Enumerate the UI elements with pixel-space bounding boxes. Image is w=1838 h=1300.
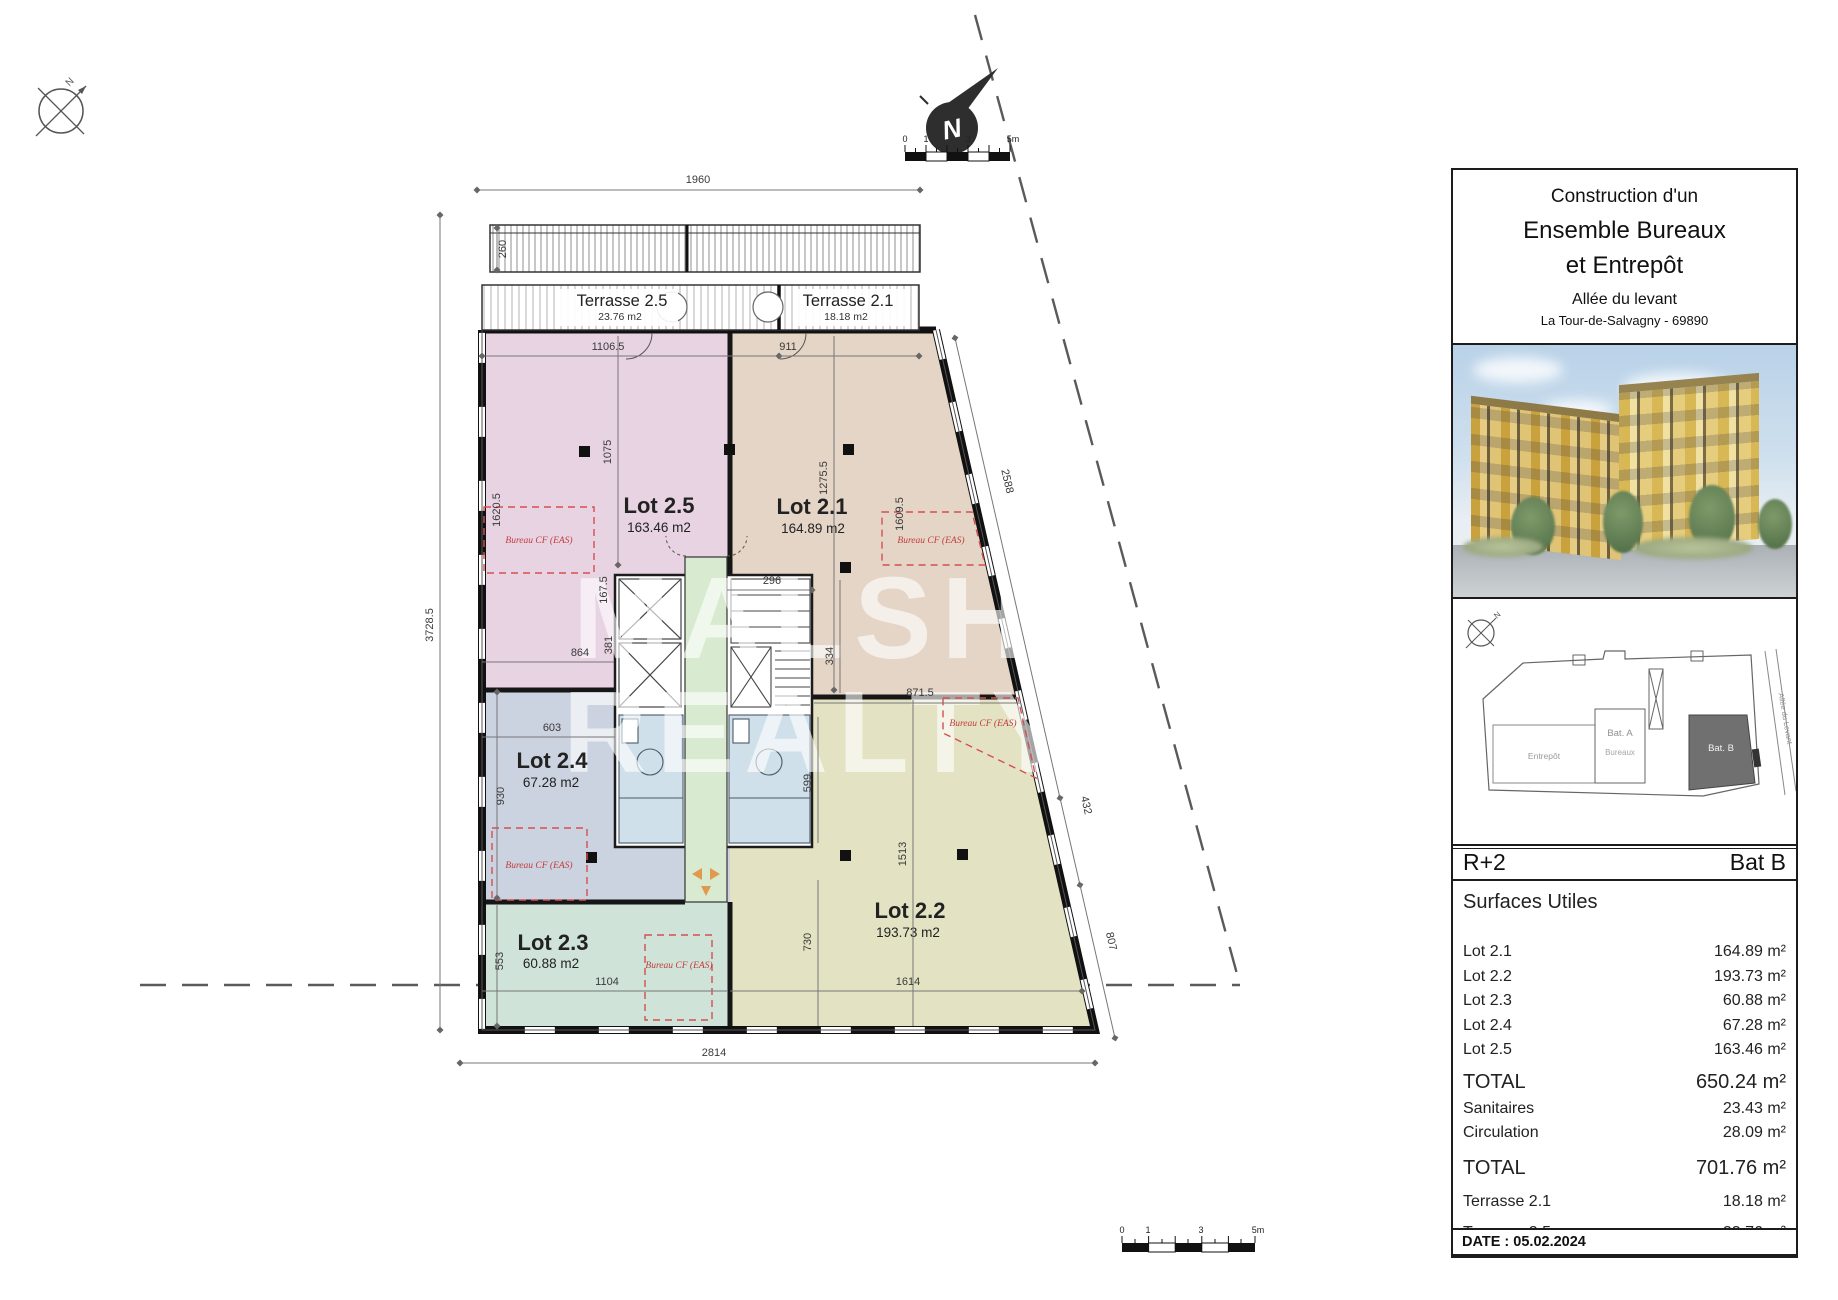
table-row: Sanitaires23.43 m² — [1463, 1097, 1786, 1122]
svg-text:603: 603 — [543, 722, 561, 734]
scale-bar-bottom: 0 1 3 5m — [1119, 1225, 1264, 1252]
site-compass-icon: N — [1466, 610, 1503, 648]
svg-text:0: 0 — [902, 134, 907, 144]
svg-text:930: 930 — [495, 787, 507, 805]
svg-text:167.5: 167.5 — [598, 576, 610, 604]
svg-text:334: 334 — [824, 647, 836, 665]
site-street-label: Allée du Levant — [1777, 692, 1795, 745]
terrace-2-1-area: 18.18 m2 — [824, 311, 868, 323]
lot-2-1-name: Lot 2.1 — [777, 494, 848, 519]
svg-text:3728.5: 3728.5 — [424, 608, 436, 642]
svg-text:1: 1 — [923, 134, 928, 144]
svg-text:381: 381 — [603, 636, 615, 654]
svg-text:Bureau CF (EAS): Bureau CF (EAS) — [645, 960, 712, 971]
north-arrow-icon: N — [920, 68, 998, 160]
svg-text:N: N — [1492, 610, 1502, 621]
svg-text:1275.5: 1275.5 — [818, 461, 830, 495]
site-bat-a-label: Bat. A — [1607, 728, 1633, 739]
surfaces-table: Surfaces Utiles Lot 2.1164.89 m² Lot 2.2… — [1453, 881, 1796, 1230]
site-bat-a — [1595, 709, 1645, 783]
table-row: Lot 2.5163.46 m² — [1463, 1038, 1786, 1063]
svg-text:5m: 5m — [1252, 1225, 1265, 1235]
project-title-line3: et Entrepôt — [1453, 252, 1796, 280]
project-title-box: Construction d'un Ensemble Bureaux et En… — [1453, 170, 1796, 345]
site-plan-drawing: N Entrepôt Bat. A Bureaux Bat. B Allée d… — [1453, 599, 1796, 844]
floor-plan-sheet: N — [0, 0, 1838, 1300]
project-city: La Tour-de-Salvagny - 69890 — [1453, 313, 1796, 328]
building-render-image — [1453, 345, 1796, 599]
table-row: Terrasse 2.118.18 m² — [1463, 1190, 1786, 1215]
lot-2-4-area-label: 67.28 m2 — [523, 775, 579, 790]
svg-text:1104: 1104 — [595, 976, 619, 988]
svg-text:3: 3 — [965, 134, 970, 144]
svg-text:1614: 1614 — [896, 976, 920, 988]
lot-2-5-area-label: 163.46 m2 — [627, 520, 691, 535]
floor-label: R+2 — [1463, 849, 1506, 876]
table-row: Lot 2.1164.89 m² — [1463, 940, 1786, 965]
svg-text:MALSH: MALSH — [573, 553, 1035, 683]
building-label: Bat B — [1730, 849, 1786, 876]
site-entrepot-label: Entrepôt — [1528, 751, 1561, 761]
table-row: Circulation28.09 m² — [1463, 1121, 1786, 1146]
svg-text:Bureau CF (EAS): Bureau CF (EAS) — [949, 718, 1016, 729]
floor-header-row: R+2 Bat B — [1453, 846, 1796, 881]
render-art — [1453, 345, 1796, 597]
svg-text:730: 730 — [802, 933, 814, 951]
title-block-panel: Construction d'un Ensemble Bureaux et En… — [1451, 168, 1798, 1258]
date-bar: DATE : 05.02.2024 — [1453, 1230, 1796, 1256]
lot-2-1-area-label: 164.89 m2 — [781, 521, 845, 536]
table-row: Lot 2.467.28 m² — [1463, 1014, 1786, 1039]
svg-text:1620.5: 1620.5 — [491, 493, 503, 527]
lot-2-4-name: Lot 2.4 — [517, 748, 589, 773]
svg-text:296: 296 — [763, 575, 781, 587]
lot-2-3-area-label: 60.88 m2 — [523, 956, 579, 971]
project-address: Allée du levant — [1453, 291, 1796, 309]
site-plan-box: N Entrepôt Bat. A Bureaux Bat. B Allée d… — [1453, 599, 1796, 846]
svg-text:3: 3 — [1198, 1225, 1203, 1235]
svg-text:1106.5: 1106.5 — [592, 341, 625, 353]
date-label: DATE : 05.02.2024 — [1462, 1234, 1586, 1250]
svg-text:REALTY: REALTY — [563, 667, 1078, 797]
svg-text:260: 260 — [497, 240, 509, 258]
table-row-total: TOTAL701.76 m² — [1463, 1153, 1786, 1183]
svg-text:1: 1 — [1145, 1225, 1150, 1235]
table-row-total: TOTAL650.24 m² — [1463, 1067, 1786, 1097]
lot-2-5-name: Lot 2.5 — [624, 493, 695, 518]
svg-text:0: 0 — [1119, 1225, 1124, 1235]
svg-text:871.5: 871.5 — [906, 687, 934, 699]
svg-text:2814: 2814 — [702, 1047, 726, 1059]
svg-text:599: 599 — [802, 774, 814, 792]
svg-text:5m: 5m — [1007, 134, 1020, 144]
svg-text:1960: 1960 — [686, 174, 710, 186]
svg-text:N: N — [64, 76, 77, 89]
svg-text:864: 864 — [571, 647, 589, 659]
terrace-2-1-label: Terrasse 2.1 — [803, 292, 894, 310]
terrace-2-5-area: 23.76 m2 — [598, 311, 642, 323]
project-title-line1: Construction d'un — [1453, 186, 1796, 208]
site-bureaux-label: Bureaux — [1605, 748, 1635, 757]
surfaces-section-title: Surfaces Utiles — [1463, 891, 1786, 914]
svg-text:1513: 1513 — [897, 842, 909, 866]
corner-compass-icon: N — [36, 76, 86, 136]
lot-2-2-name: Lot 2.2 — [875, 898, 946, 923]
lot-2-2-area-label: 193.73 m2 — [876, 925, 940, 940]
lot-2-3-name: Lot 2.3 — [518, 930, 589, 955]
svg-text:2588: 2588 — [998, 468, 1015, 495]
svg-text:Bureau CF (EAS): Bureau CF (EAS) — [505, 535, 572, 546]
table-row: Lot 2.360.88 m² — [1463, 989, 1786, 1014]
project-title-line2: Ensemble Bureaux — [1453, 217, 1796, 245]
svg-text:911: 911 — [779, 341, 797, 353]
svg-text:432: 432 — [1078, 795, 1094, 816]
table-row: Terrasse 2.523.76 m² — [1463, 1221, 1786, 1230]
terraces: Terrasse 2.5 23.76 m2 Terrasse 2.1 18.18… — [482, 225, 920, 330]
upper-balcony — [490, 225, 920, 272]
site-bat-b-label: Bat. B — [1708, 743, 1734, 754]
svg-text:553: 553 — [494, 952, 506, 970]
svg-text:1075: 1075 — [602, 440, 614, 464]
svg-text:Bureau CF (EAS): Bureau CF (EAS) — [897, 535, 964, 546]
svg-text:807: 807 — [1103, 931, 1119, 952]
svg-text:Bureau CF (EAS): Bureau CF (EAS) — [505, 860, 572, 871]
table-row: Lot 2.2193.73 m² — [1463, 965, 1786, 990]
svg-text:1609.5: 1609.5 — [894, 497, 906, 531]
terrace-2-5-label: Terrasse 2.5 — [577, 292, 668, 310]
